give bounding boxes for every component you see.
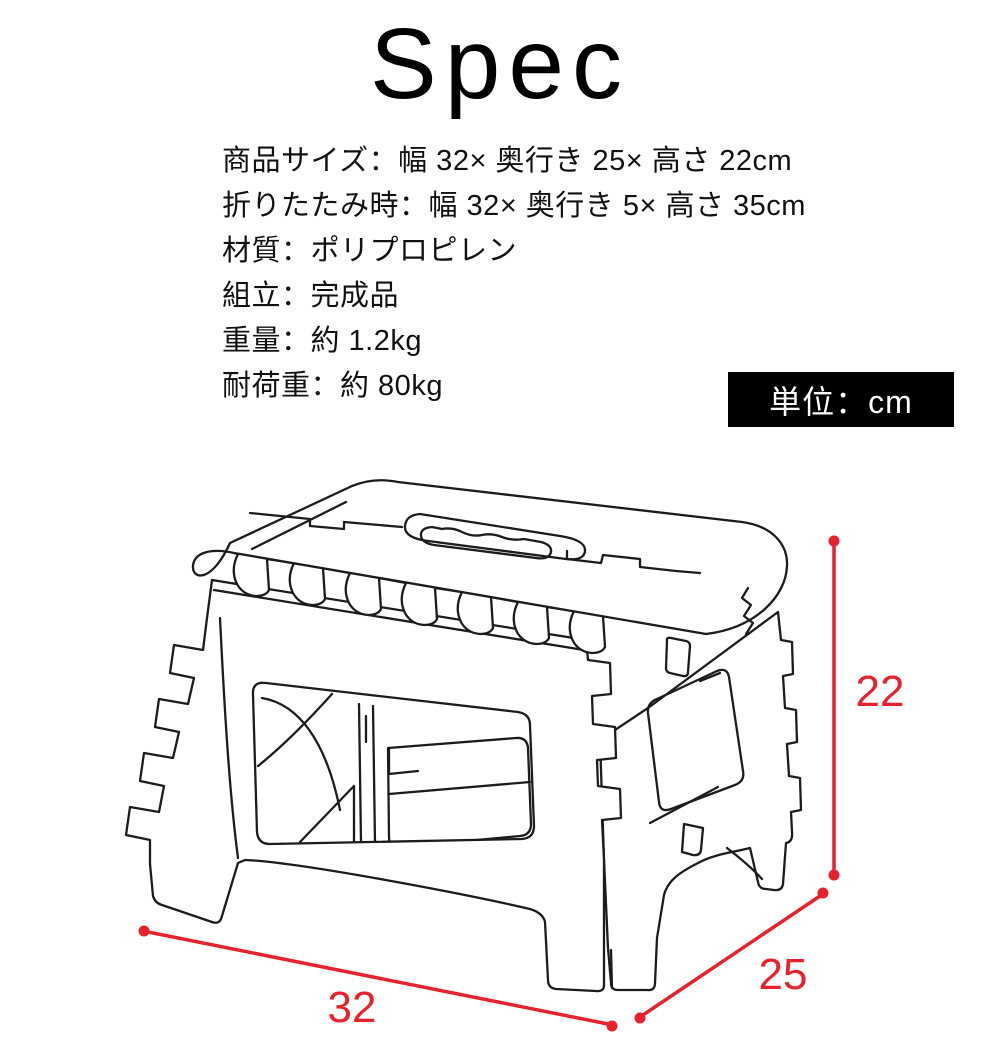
dimension-dot <box>829 536 840 547</box>
depth-dimension-label: 25 <box>738 953 828 997</box>
dimension-dot <box>829 870 840 881</box>
width-dimension-label: 32 <box>307 986 397 1030</box>
dimension-dot <box>607 1021 618 1032</box>
center-bar-right <box>373 706 375 843</box>
brace-triangle <box>300 786 354 842</box>
side-panel <box>600 612 801 990</box>
stool-line-drawing <box>0 0 1000 1055</box>
side-panel-outline <box>600 612 801 990</box>
height-dimension-label: 22 <box>835 670 925 714</box>
back-foot-seam <box>611 950 612 988</box>
inner-plate-line <box>389 782 530 794</box>
folding-mechanism-lines <box>258 694 531 847</box>
brace-curve-2 <box>258 694 332 766</box>
dimension-dot <box>818 888 829 899</box>
dimension-dot <box>139 926 150 937</box>
side-bottom-tab <box>682 824 703 855</box>
dimension-dot <box>635 1013 646 1024</box>
inner-plate-step <box>389 748 418 774</box>
spec-page: Spec 商品サイズ：幅 32× 奥行き 25× 高さ 22cm 折りたたみ時：… <box>0 0 1000 1055</box>
center-bar-left <box>359 704 361 842</box>
seat-side-hinge-tab <box>666 638 690 676</box>
